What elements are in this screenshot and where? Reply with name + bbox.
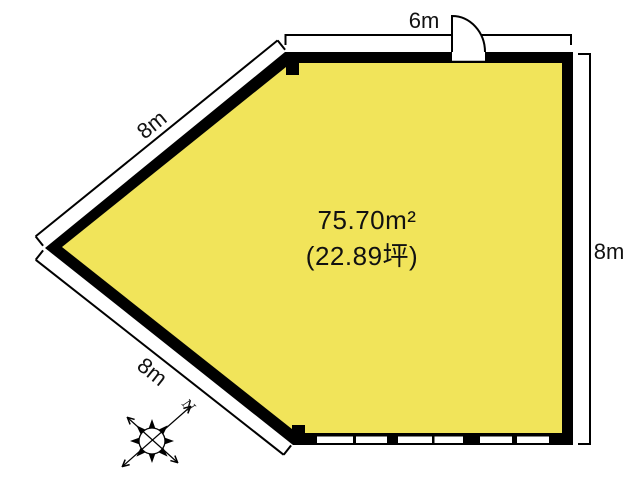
door-swing-icon — [452, 16, 485, 62]
column-marker-bottom-left — [292, 425, 305, 436]
dimension-label-right: 8m — [594, 241, 625, 263]
area-tsubo: (22.89坪) — [306, 243, 418, 269]
dimension-label-top: 6m — [409, 10, 440, 32]
floor-plan: 6m 8m 8m 8m 75.70m² (22.89坪) N — [0, 0, 640, 480]
dimension-line-right — [578, 54, 590, 444]
floor-plan-drawing — [0, 0, 640, 480]
area-square-meters: 75.70m² — [318, 207, 417, 233]
dimension-line-top — [286, 35, 572, 45]
compass-rose-icon — [123, 407, 190, 466]
column-marker-top-left — [286, 62, 299, 75]
